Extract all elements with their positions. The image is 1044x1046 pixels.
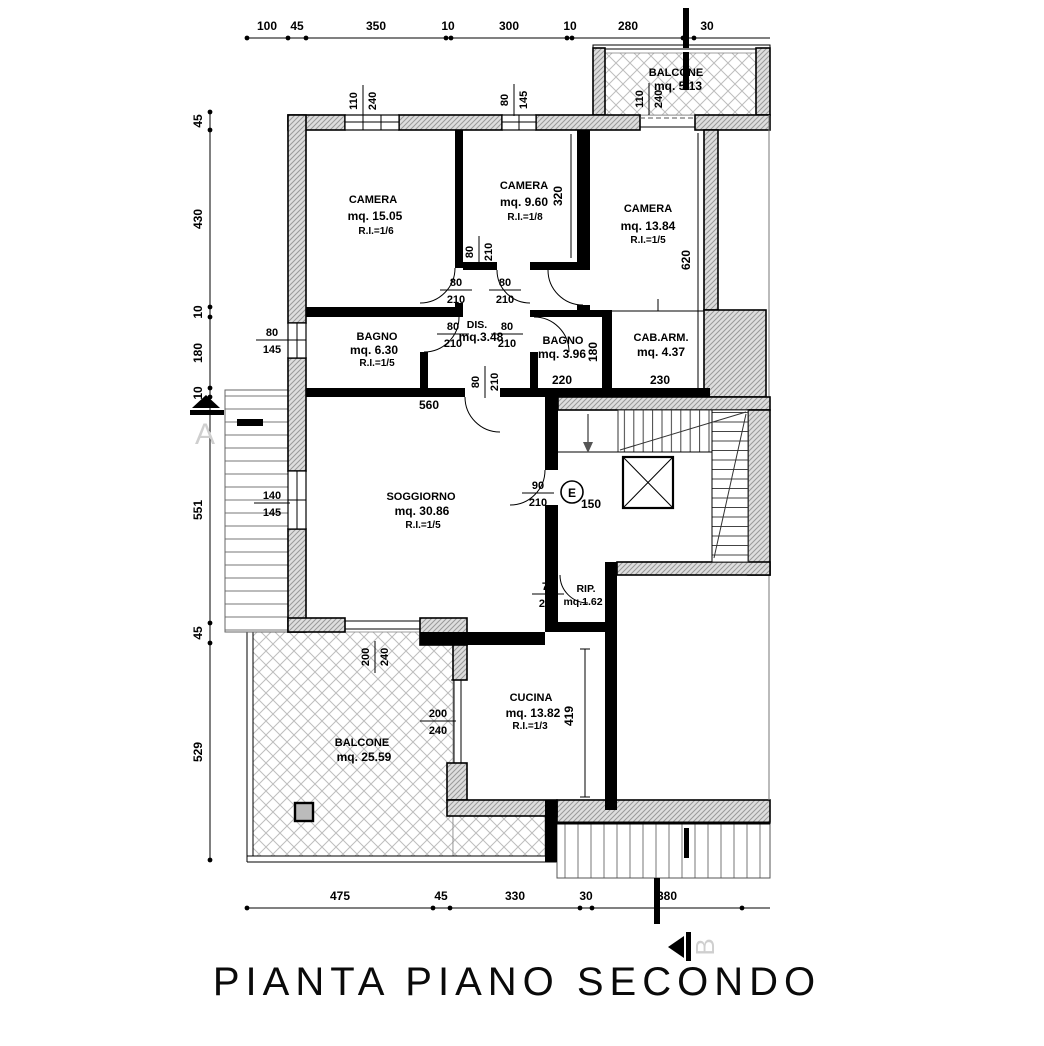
room-cucina-area: mq. 13.82 — [506, 706, 561, 720]
window-camera1 — [345, 115, 399, 130]
door-dis-soggiorno — [465, 397, 500, 432]
dim-bagno2-depth: 180 — [586, 342, 600, 362]
section-line-b-tick-strip — [684, 828, 689, 858]
section-line-b-tick-balcony — [683, 52, 689, 90]
dim-top-10b: 10 — [563, 19, 577, 33]
svg-text:140: 140 — [263, 490, 281, 502]
section-line-a-tick — [237, 419, 263, 426]
dim-bottom-45: 45 — [434, 889, 448, 903]
svg-text:200: 200 — [360, 648, 372, 666]
elevator-symbol-letter: E — [568, 486, 576, 500]
room-rip-name: RIP. — [576, 583, 595, 595]
room-camera3-ri: R.I.=1/5 — [630, 235, 666, 246]
room-bagno2-area: mq. 3.96 — [538, 347, 586, 361]
dim-top-280: 280 — [618, 19, 638, 33]
room-balcone1-area: mq. 25.59 — [337, 750, 392, 764]
section-b-arrow-icon — [668, 936, 684, 958]
dim-left-10a: 10 — [191, 305, 205, 319]
svg-text:240: 240 — [379, 648, 391, 666]
svg-text:210: 210 — [444, 338, 462, 350]
room-cabarm-area: mq. 4.37 — [637, 345, 685, 359]
room-camera2-name: CAMERA — [500, 180, 548, 192]
svg-text:80: 80 — [447, 321, 459, 333]
svg-text:210: 210 — [496, 294, 514, 306]
svg-text:210: 210 — [489, 373, 501, 391]
room-soggiorno-area: mq. 30.86 — [395, 504, 450, 518]
dim-top-30: 30 — [700, 19, 714, 33]
dim-soggiorno-width: 560 — [419, 398, 439, 412]
room-camera2-area: mq. 9.60 — [500, 195, 548, 209]
svg-text:210: 210 — [447, 294, 465, 306]
svg-text:80: 80 — [501, 321, 513, 333]
label-door-dis-soggiorno: 80 210 — [470, 366, 501, 398]
floor-plan-page: E CAMERA mq. 15.05 R.I.=1/6 CAMERA mq. 9… — [0, 0, 1044, 1046]
balcony-pillar — [295, 803, 313, 821]
dim-left-45b: 45 — [191, 626, 205, 640]
dim-top-300: 300 — [499, 19, 519, 33]
stairwell: E — [558, 410, 748, 562]
dim-cucina-depth: 419 — [562, 706, 576, 726]
room-cucina-ri: R.I.=1/3 — [512, 721, 548, 732]
dim-top-45: 45 — [290, 19, 304, 33]
room-cucina-name: CUCINA — [510, 692, 553, 704]
svg-text:80: 80 — [266, 327, 278, 339]
dim-left-529: 529 — [191, 742, 205, 762]
room-balcone2-name: BALCONE — [649, 67, 703, 79]
soggiorno-balcony-opening — [345, 621, 420, 629]
doors — [420, 268, 588, 603]
svg-text:210: 210 — [529, 497, 547, 509]
section-b-letter: B — [690, 938, 720, 955]
room-camera1-area: mq. 15.05 — [348, 209, 403, 223]
dim-bottom-30: 30 — [579, 889, 593, 903]
room-camera1-name: CAMERA — [349, 194, 397, 206]
dim-bottom-330: 330 — [505, 889, 525, 903]
label-win-bagno1: 80 145 — [256, 327, 288, 356]
label-win-camera1: 110 240 — [348, 85, 379, 117]
svg-text:240: 240 — [367, 92, 379, 110]
dim-camera2-depth: 320 — [551, 186, 565, 206]
dim-top-10a: 10 — [441, 19, 455, 33]
svg-text:145: 145 — [263, 507, 281, 519]
section-line-b-tick-bottom — [654, 878, 660, 924]
svg-text:80: 80 — [499, 94, 511, 106]
room-bagno2-name: BAGNO — [543, 335, 584, 347]
label-win-camera2: 80 145 — [499, 84, 530, 116]
svg-text:145: 145 — [518, 91, 530, 109]
svg-text:80: 80 — [464, 246, 476, 258]
svg-text:145: 145 — [263, 344, 281, 356]
dim-camera3-depth: 620 — [679, 250, 693, 270]
room-cabarm-name: CAB.ARM. — [634, 332, 689, 344]
room-soggiorno-ri: R.I.=1/5 — [405, 520, 441, 531]
room-soggiorno-name: SOGGIORNO — [386, 491, 456, 503]
dim-bagno2-width: 220 — [552, 373, 572, 387]
bottom-right-balcony-strip — [557, 800, 770, 878]
plan-title: PIANTA PIANO SECONDO — [213, 960, 821, 1004]
dim-bottom-380: 380 — [657, 889, 677, 903]
room-rip-area: mq.1.62 — [563, 596, 602, 608]
dim-cabarm-width: 230 — [650, 373, 670, 387]
svg-text:240: 240 — [429, 725, 447, 737]
dimension-chain-left: 45 430 10 180 10 551 45 529 A — [190, 110, 224, 863]
room-bagno1-ri: R.I.=1/5 — [359, 358, 395, 369]
section-a-letter: A — [195, 418, 215, 451]
dim-left-45a: 45 — [191, 114, 205, 128]
svg-text:80: 80 — [450, 277, 462, 289]
svg-text:110: 110 — [634, 90, 646, 108]
section-a-bar — [190, 410, 224, 415]
svg-text:240: 240 — [653, 90, 665, 108]
balcony-main — [247, 632, 557, 862]
balcony2-door-opening — [640, 118, 695, 127]
room-balcone1-name: BALCONE — [335, 737, 389, 749]
svg-text:70: 70 — [542, 581, 554, 593]
dimension-chain-bottom: 475 45 330 30 380 — [245, 878, 770, 924]
svg-text:210: 210 — [539, 598, 557, 610]
room-camera2-ri: R.I.=1/8 — [507, 212, 543, 223]
stair-arrow-head — [583, 442, 593, 453]
window-soggiorno — [288, 471, 306, 529]
section-marker-b: B — [668, 932, 720, 961]
svg-text:80: 80 — [470, 376, 482, 388]
room-bagno1-name: BAGNO — [357, 331, 398, 343]
room-bagno1-area: mq. 6.30 — [350, 343, 398, 357]
dim-top-350: 350 — [366, 19, 386, 33]
window-bagno1 — [288, 323, 306, 358]
dim-left-10b: 10 — [191, 386, 205, 400]
label-door-soggiorno: 90 210 — [522, 480, 554, 509]
door-camera3 — [548, 270, 583, 305]
window-camera2 — [502, 115, 536, 130]
svg-text:210: 210 — [483, 243, 495, 261]
room-camera3-area: mq. 13.84 — [621, 219, 676, 233]
svg-text:110: 110 — [348, 92, 360, 110]
room-camera3-name: CAMERA — [624, 203, 672, 215]
svg-text:200: 200 — [429, 708, 447, 720]
stair-upper-flight — [618, 410, 712, 452]
svg-text:80: 80 — [499, 277, 511, 289]
dim-top-100: 100 — [257, 19, 277, 33]
dim-left-180: 180 — [191, 343, 205, 363]
dim-landing: 150 — [581, 497, 601, 511]
room-camera1-ri: R.I.=1/6 — [358, 226, 394, 237]
dim-bottom-475: 475 — [330, 889, 350, 903]
floor-plan-drawing: E CAMERA mq. 15.05 R.I.=1/6 CAMERA mq. 9… — [0, 0, 1044, 1046]
section-line-b-tick-top — [683, 8, 689, 48]
dim-left-430: 430 — [191, 209, 205, 229]
dim-left-551: 551 — [191, 500, 205, 520]
svg-text:90: 90 — [532, 480, 544, 492]
label-door-camera1: 80 210 — [440, 277, 472, 306]
svg-text:210: 210 — [498, 338, 516, 350]
